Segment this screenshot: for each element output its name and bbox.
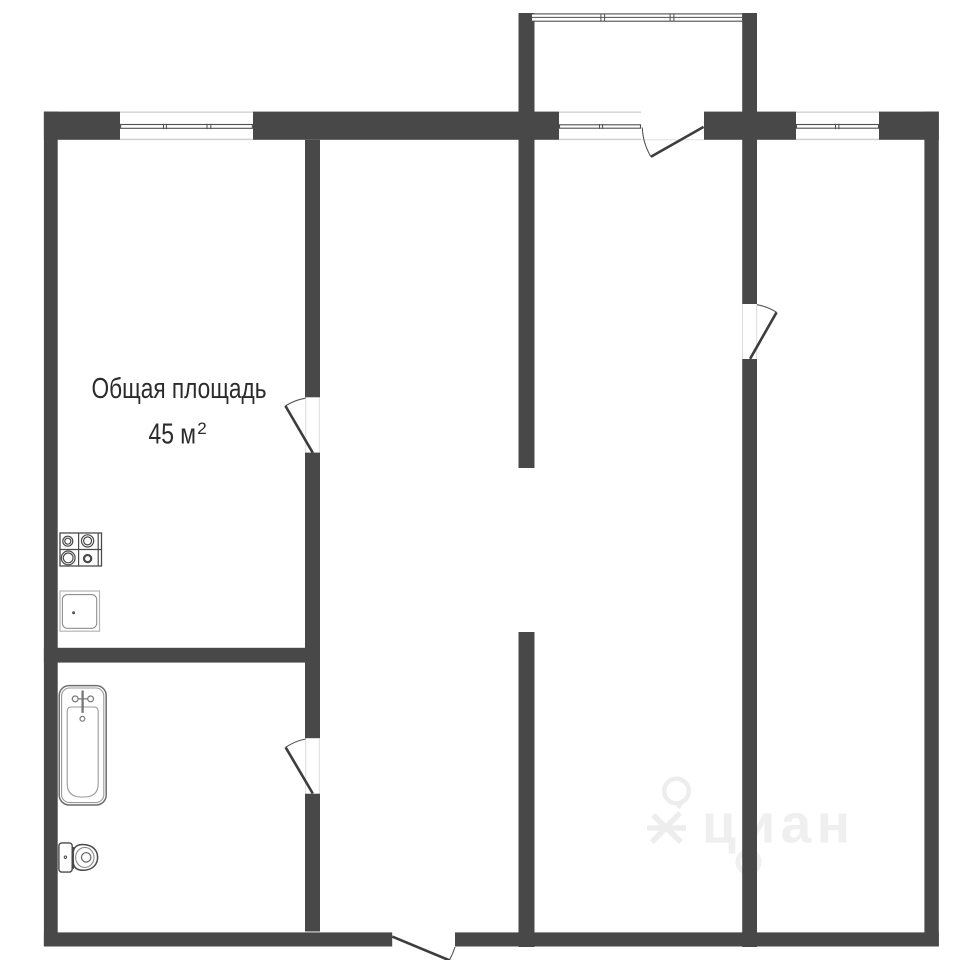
- svg-text:Общая площадь: Общая площадь: [92, 373, 267, 405]
- svg-text:45 м: 45 м: [149, 419, 197, 451]
- svg-text:2: 2: [197, 419, 206, 438]
